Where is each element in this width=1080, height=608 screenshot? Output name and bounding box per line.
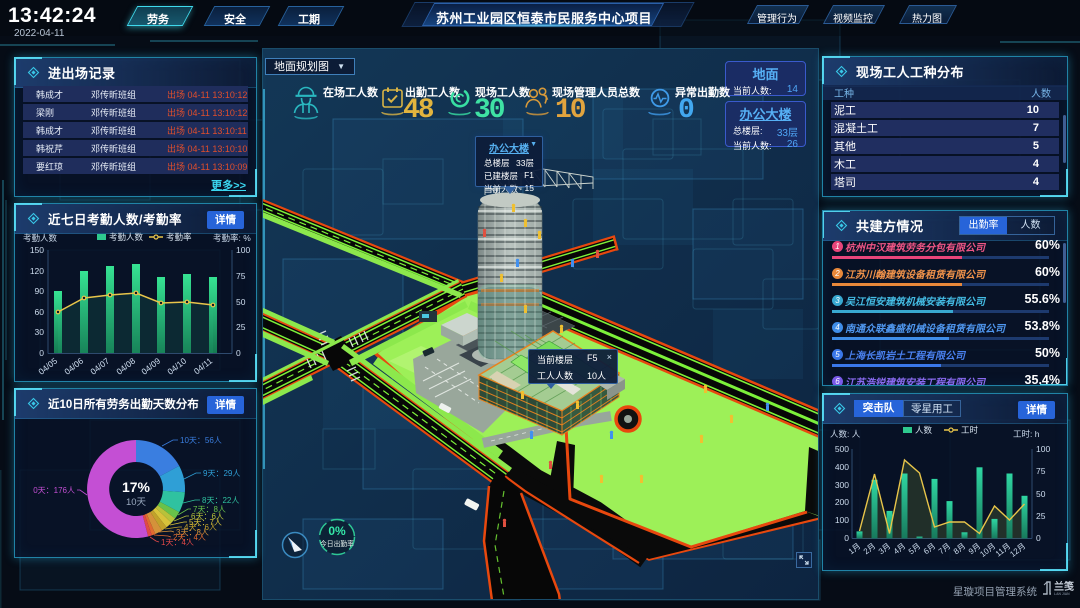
svg-text:0%: 0% bbox=[328, 524, 346, 538]
svg-text:今日出勤率: 今日出勤率 bbox=[320, 539, 354, 548]
svg-text:LAN JIAN: LAN JIAN bbox=[1054, 592, 1070, 596]
